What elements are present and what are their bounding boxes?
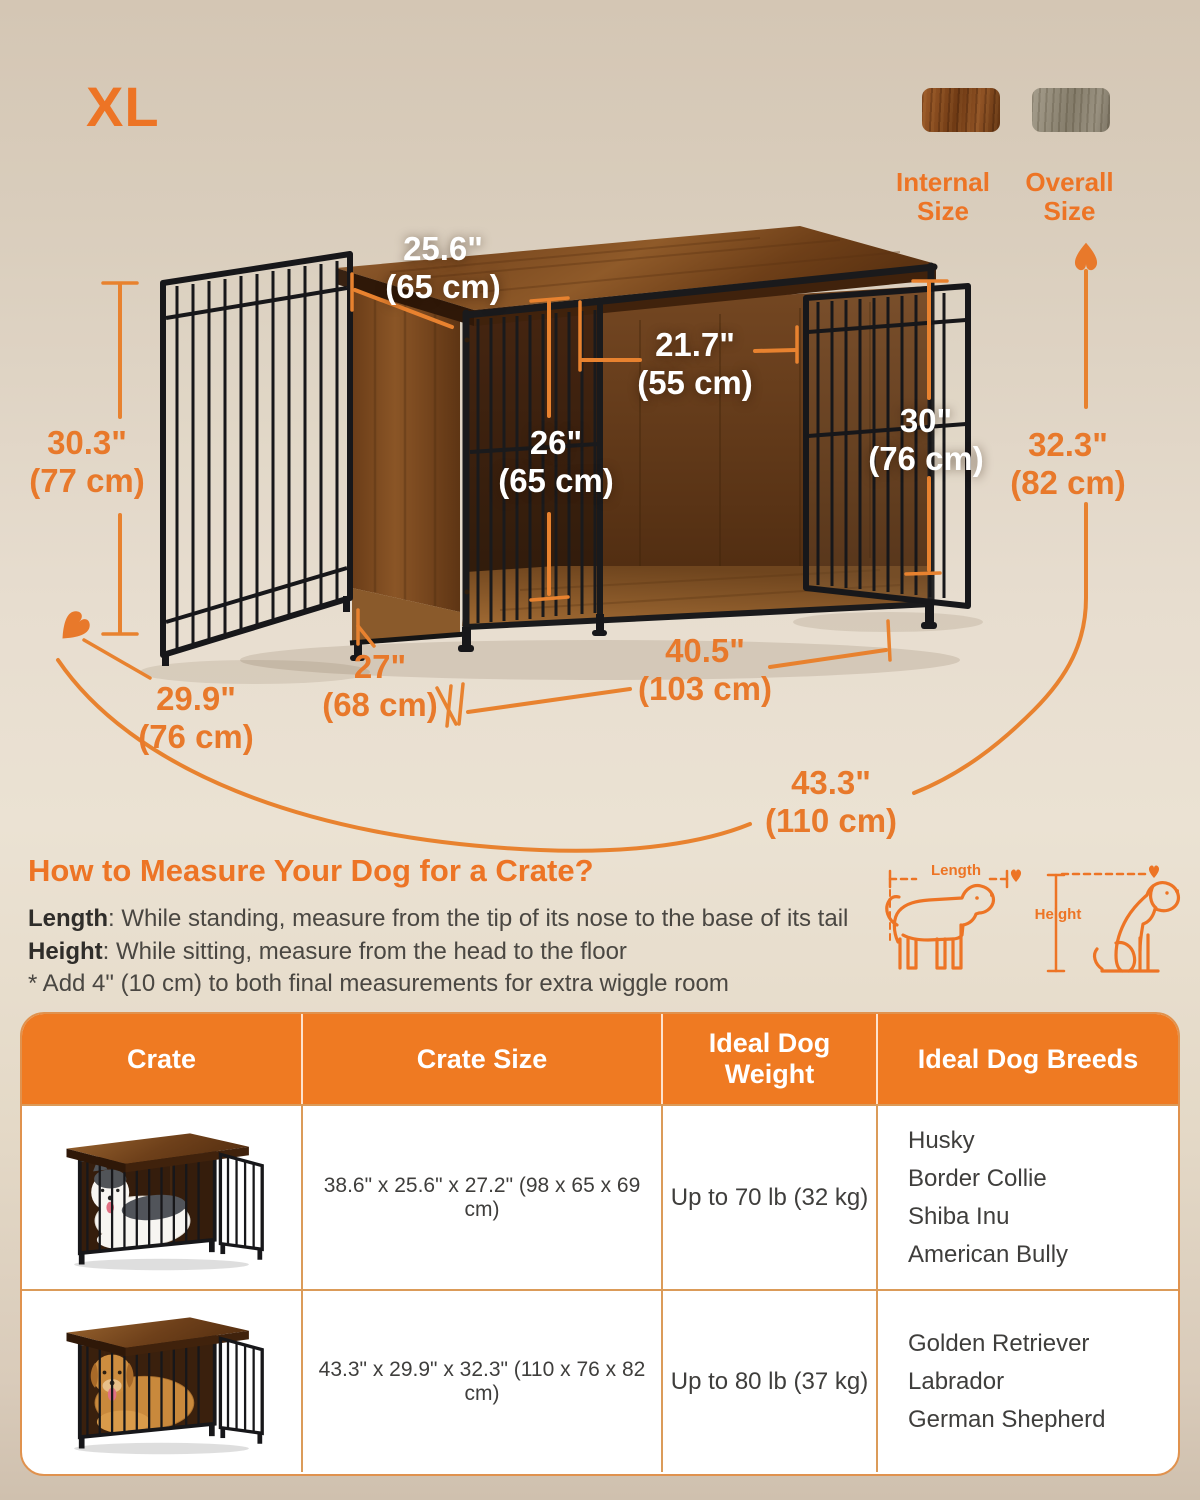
- left-door-open: [162, 254, 350, 666]
- dimension-label-overall-height: 32.3"(82 cm): [973, 426, 1163, 502]
- dog-breeds-cell: Golden Retriever Labrador German Shepher…: [878, 1291, 1178, 1472]
- header-ideal-dog-breeds: Ideal Dog Breeds: [878, 1014, 1178, 1104]
- internal-size-swatch: [922, 88, 1000, 132]
- measure-section-body: Length: While standing, measure from the…: [28, 903, 878, 1001]
- dog-weight-cell: Up to 80 lb (37 kg): [663, 1291, 878, 1472]
- measure-height-line: Height: While sitting, measure from the …: [28, 936, 878, 969]
- dimension-label-interior-width: 40.5"(103 cm): [610, 632, 800, 708]
- dimension-label-overall-width: 43.3"(110 cm): [736, 764, 926, 840]
- overall-size-swatch: [1032, 88, 1110, 132]
- infographic-canvas: XL Internal Size Overall Size 25.6"(65 c…: [0, 0, 1200, 1500]
- header-crate: Crate: [22, 1014, 303, 1104]
- dimension-label-interior-height: 26"(65 cm): [461, 424, 651, 500]
- heart-arrow-up-icon: [1075, 243, 1097, 270]
- dimension-label-overall-depth: 29.9"(76 cm): [101, 680, 291, 756]
- dimension-label-door-width: 21.7"(55 cm): [600, 326, 790, 402]
- header-crate-size: Crate Size: [303, 1014, 663, 1104]
- table-row: 38.6" x 25.6" x 27.2" (98 x 65 x 69 cm) …: [22, 1104, 1178, 1289]
- crate-size-cell: 43.3" x 29.9" x 32.3" (110 x 76 x 82 cm): [303, 1291, 663, 1472]
- table-row: 43.3" x 29.9" x 32.3" (110 x 76 x 82 cm)…: [22, 1289, 1178, 1472]
- header-ideal-dog-weight: Ideal Dog Weight: [663, 1014, 878, 1104]
- standing-dog-icon: [887, 871, 1007, 968]
- measure-note-line: * Add 4" (10 cm) to both final measureme…: [28, 968, 878, 1001]
- height-diagram-label: Height: [1022, 906, 1094, 923]
- overall-size-label: Overall Size: [1002, 168, 1137, 226]
- dimension-label-top-depth: 25.6"(65 cm): [348, 230, 538, 306]
- internal-size-label: Internal Size: [878, 168, 1008, 226]
- crate-photo-golden-retriever: [22, 1291, 303, 1472]
- size-comparison-table: Crate Crate Size Ideal Dog Weight Ideal …: [20, 1012, 1180, 1476]
- dimension-label-side-height: 30.3"(77 cm): [0, 424, 174, 500]
- length-diagram-label: Length: [920, 862, 992, 879]
- measure-section-title: How to Measure Your Dog for a Crate?: [28, 853, 594, 889]
- measure-length-line: Length: While standing, measure from the…: [28, 903, 878, 936]
- dog-breeds-cell: Husky Border Collie Shiba Inu American B…: [878, 1106, 1178, 1289]
- crate-photo-husky: [22, 1106, 303, 1289]
- crate-size-cell: 38.6" x 25.6" x 27.2" (98 x 65 x 69 cm): [303, 1106, 663, 1289]
- heart-icon: [1011, 870, 1021, 883]
- dimension-label-interior-depth: 27"(68 cm): [285, 648, 475, 724]
- heart-icon: [1149, 866, 1159, 879]
- dog-measuring-diagrams: [850, 843, 1200, 1005]
- size-badge: XL: [86, 74, 160, 139]
- dog-weight-cell: Up to 70 lb (32 kg): [663, 1106, 878, 1289]
- table-header-row: Crate Crate Size Ideal Dog Weight Ideal …: [22, 1014, 1178, 1104]
